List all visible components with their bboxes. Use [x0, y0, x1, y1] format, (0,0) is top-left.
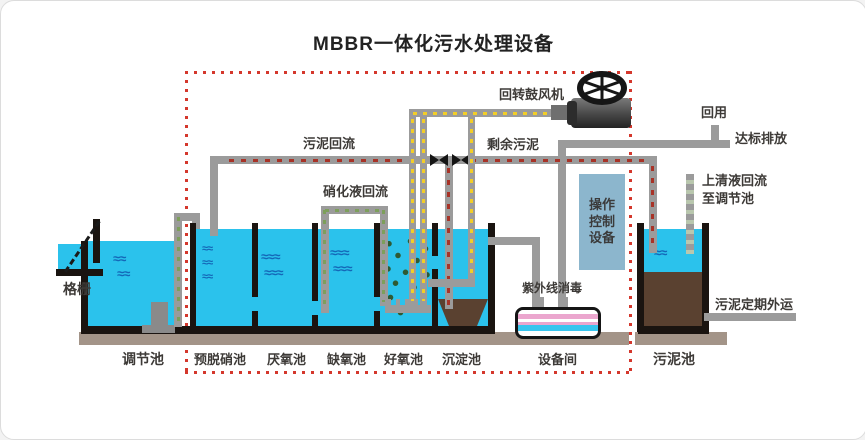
valve-icon	[439, 154, 448, 166]
wave-marks: ≈≈	[202, 272, 212, 283]
tank-partition	[312, 315, 318, 326]
tank-wall	[637, 223, 644, 332]
label-uv-disinfection: 紫外线消毒	[522, 282, 582, 296]
flow-arrows-green	[177, 217, 180, 322]
wave-marks: ≈≈	[202, 258, 212, 269]
flow-arrows-yellow	[470, 119, 473, 277]
wave-marks: ≈≈	[202, 244, 212, 255]
pump-base	[142, 325, 175, 333]
diagram-title: MBBR一体化污水处理设备	[1, 34, 865, 56]
pipe-uv-outlet-riser	[558, 144, 566, 304]
pipe-reuse-branch	[711, 125, 719, 141]
flow-arrows-green	[323, 210, 326, 309]
label-supernatant-line1: 上清液回流	[702, 174, 767, 189]
wave-marks: ≈≈≈	[264, 266, 282, 279]
label-reuse: 回用	[701, 106, 727, 121]
tank-wall	[190, 223, 196, 334]
flow-arrows-green	[382, 210, 385, 302]
label-tank-settler: 沉淀池	[442, 353, 481, 368]
wave-marks: ≈≈≈	[261, 250, 279, 263]
flow-arrows-red	[471, 159, 646, 162]
flow-arrows-yellow	[422, 119, 425, 301]
pipe-supernatant-return	[686, 174, 694, 254]
uv-disinfection-unit	[515, 307, 601, 339]
sludge-tank-mud	[644, 272, 702, 326]
dashed-boundary-top	[185, 71, 632, 74]
label-tank-predenit: 预脱硝池	[194, 353, 246, 368]
label-nitrified-return: 硝化液回流	[323, 185, 388, 200]
wave-marks: ≈≈	[117, 267, 129, 280]
flow-arrows-green	[325, 209, 385, 212]
label-discharge: 达标排放	[735, 132, 787, 147]
label-sludge-haul-out: 污泥定期外运	[715, 298, 793, 313]
tank-floor-sludge	[638, 326, 709, 334]
diagram-canvas: MBBR一体化污水处理设备 ≈≈ ≈≈ ≈≈ ≈≈ ≈≈ ≈≈≈ ≈≈≈ ≈≈≈…	[0, 0, 865, 440]
flow-arrows-red	[229, 159, 427, 162]
wave-marks: ≈≈≈	[333, 262, 351, 275]
pipe-sludge-return-drop	[210, 156, 218, 236]
label-bar-screen: 格栅	[63, 281, 91, 297]
tank-partition	[252, 223, 258, 297]
label-tank-anaerobic: 厌氧池	[267, 353, 306, 368]
blower-end-cap	[567, 101, 577, 125]
tank-partition	[374, 311, 380, 326]
label-tank-regulation: 调节池	[122, 351, 164, 367]
label-tank-anoxic: 缺氧池	[327, 353, 366, 368]
label-supernatant-line2: 至调节池	[702, 192, 754, 207]
flow-arrows-red	[651, 166, 654, 246]
flow-arrows-yellow	[413, 112, 551, 115]
valve-icon	[430, 154, 439, 166]
pipe-sludge-haul-out	[704, 313, 796, 321]
blower-fan-icon	[577, 71, 627, 106]
pipe-discharge	[558, 140, 730, 148]
wave-marks: ≈≈≈	[330, 246, 348, 259]
label-tank-aerobic: 好氧池	[384, 353, 423, 368]
label-equipment-room: 设备间	[538, 353, 577, 368]
control-cabinet-text: 控制	[589, 215, 615, 230]
wave-marks: ≈≈	[113, 252, 125, 265]
valve-icon	[452, 154, 461, 166]
tank-partition	[312, 223, 318, 301]
control-cabinet-text: 操作	[589, 198, 615, 213]
label-sludge-return: 污泥回流	[303, 137, 355, 152]
label-excess-sludge: 剩余污泥	[487, 138, 539, 153]
control-cabinet-text: 设备	[589, 231, 615, 246]
control-cabinet: 操作 控制 设备	[579, 174, 625, 270]
label-blower: 回转鼓风机	[499, 88, 564, 103]
tank-partition	[252, 311, 258, 326]
flow-arrows-yellow	[411, 119, 414, 301]
pipe-airlift-elbow	[428, 279, 475, 287]
label-tank-sludge: 污泥池	[653, 351, 695, 367]
submersible-pump	[151, 302, 168, 327]
dashed-boundary-bottom	[185, 371, 632, 374]
